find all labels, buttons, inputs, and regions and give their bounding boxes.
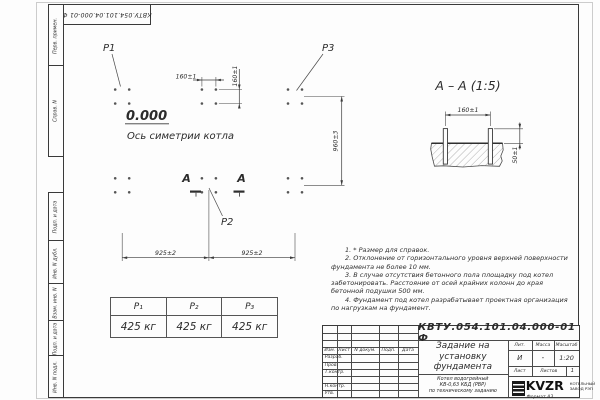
- kvzr-logo-text: KVZR: [526, 378, 564, 393]
- section-letter-left: А: [181, 172, 191, 185]
- section-letter-right: А: [236, 172, 246, 185]
- section-dim-spacing: 160±1: [458, 107, 479, 114]
- row-razrab: Разраб.: [323, 354, 353, 361]
- load-value-p1: 425 кг: [111, 316, 167, 338]
- load-value-p2: 425 кг: [166, 316, 222, 338]
- axis-label: Ось симетрии котла: [127, 131, 234, 142]
- company-name: КОТЕЛЬНЫЙ ЗАВОД РЭП: [570, 382, 600, 391]
- note-4: 4. Фундамент под котел разрабатывает про…: [331, 296, 577, 313]
- note-1: 1. * Размер для справок.: [331, 246, 577, 254]
- technical-notes: 1. * Размер для справок. 2. Отклонение о…: [331, 246, 577, 312]
- lit-label: Лит.: [508, 340, 532, 350]
- p3-label: P3: [322, 43, 334, 54]
- load-value-p3: 425 кг: [222, 316, 278, 338]
- kvzr-logo-icon: [512, 381, 525, 396]
- dim-bolt-spacing-h: 160±1: [176, 73, 197, 80]
- mass-label: Масса: [532, 340, 555, 350]
- scale-value: 1:20: [554, 350, 579, 366]
- row-nkontr: Н.контр.: [323, 383, 353, 390]
- scale-label: Масштаб: [554, 340, 579, 350]
- lit-value: И: [508, 350, 532, 366]
- col-ndokum: N докум.: [351, 347, 379, 354]
- col-izm: Изм.: [323, 347, 337, 354]
- load-header-p1: P₁: [111, 298, 167, 316]
- title-block: Изм. Лист N докум. Подп. Дата Разраб. Пр…: [322, 325, 580, 398]
- listov-label: Листов: [532, 366, 566, 376]
- extension-lines: [122, 77, 523, 261]
- format-label: Формат А3: [500, 395, 580, 400]
- dimension-arrows: [122, 79, 521, 259]
- p1-label: P1: [103, 43, 115, 54]
- dim-bolt-spacing-v: 160±1: [232, 66, 239, 87]
- mass-value: -: [532, 350, 555, 366]
- load-table-header-row: P₁ P₂ P₃: [111, 298, 278, 316]
- p2-label: P2: [221, 217, 233, 228]
- anchor-bolt-left: [443, 129, 447, 165]
- dim-row-spacing: 960±3: [333, 130, 340, 151]
- doc-number: КВТУ.054.101.04.000-01 Ф: [418, 326, 579, 340]
- row-utv: Утв.: [323, 390, 353, 397]
- dim-col-left: 925±2: [155, 250, 176, 257]
- load-header-p3: P₃: [222, 298, 278, 316]
- row-tkontr: Т.контр.: [323, 369, 353, 376]
- section-title: А – А (1:5): [434, 78, 500, 93]
- note-2: 2. Отклонение от горизонтального уровня …: [331, 254, 577, 271]
- col-podp: Подп.: [379, 347, 398, 354]
- note-3: 3. В случае отсутствия бетонного пола пл…: [331, 271, 577, 296]
- listov-value: 1: [566, 366, 579, 376]
- drawing-sheet: КВТУ.054.101.04.000-01 Ф Перв. примен. С…: [0, 0, 600, 400]
- drawing-subtitle: Котел водогрейный КВ-0,63 КБД (РВР) по т…: [418, 376, 508, 395]
- col-data: Дата: [398, 347, 418, 354]
- section-cut-marks: [190, 192, 245, 197]
- row-prov: Пров.: [323, 362, 353, 369]
- list-label: Лист: [508, 366, 532, 376]
- load-header-p2: P₂: [166, 298, 222, 316]
- elevation-label: 0.000: [126, 109, 167, 124]
- dim-col-right: 925±2: [242, 250, 263, 257]
- load-table-value-row: 425 кг 425 кг 425 кг: [111, 316, 278, 338]
- section-dim-height: 50±1: [512, 147, 519, 164]
- anchor-bolt-right: [488, 129, 492, 165]
- drawing-title: Задание на установку фундамента: [418, 341, 508, 373]
- load-table: P₁ P₂ P₃ 425 кг 425 кг 425 кг: [110, 297, 278, 338]
- col-list: Лист: [337, 347, 351, 354]
